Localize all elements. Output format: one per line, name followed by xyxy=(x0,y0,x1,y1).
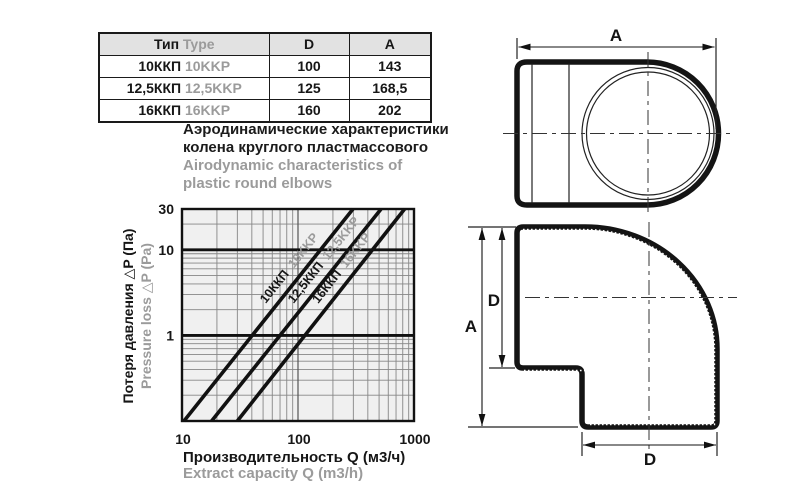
dim-label-a-top: A xyxy=(610,26,622,45)
side-section-drawing: A D D xyxy=(465,222,737,469)
wall-stipple-line xyxy=(523,230,715,425)
dim-label-a-side: A xyxy=(465,317,477,336)
dim-label-d-outlet: D xyxy=(644,450,656,469)
dim-label-d-inlet: D xyxy=(488,291,500,310)
elbow-drawings: A A D D xyxy=(0,0,800,500)
side-view-outline xyxy=(517,227,717,427)
top-view-drawing: A xyxy=(503,26,734,216)
catalog-page: Тип Type D A 10ККП 10KKP10014312,5ККП 12… xyxy=(0,0,800,500)
